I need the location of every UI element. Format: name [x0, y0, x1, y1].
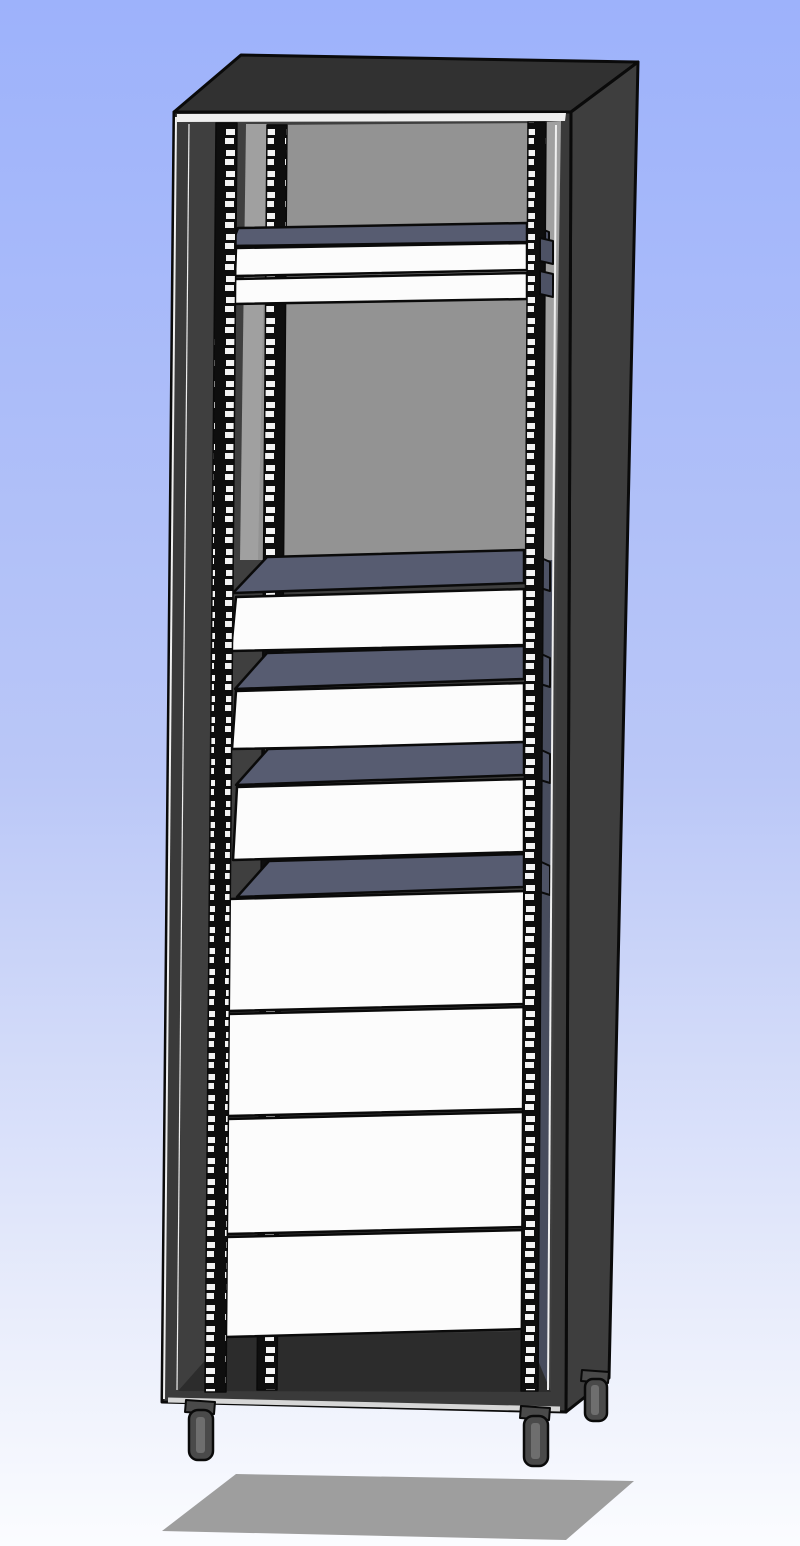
blank-panel-1 [228, 891, 526, 1011]
back-panel [255, 123, 546, 560]
top-edge-highlight [177, 113, 566, 122]
blank-panel-2 [227, 1007, 526, 1116]
rack-unit-panel-2 [234, 273, 527, 304]
mounting-tab-2 [540, 271, 553, 297]
drawer-3 [233, 779, 524, 860]
caster-rear-right-hub [591, 1385, 599, 1415]
caster-front-right-hub [531, 1423, 540, 1459]
rack-render [0, 0, 800, 1546]
rack-unit-panel-1 [235, 243, 527, 276]
cabinet-top-face [174, 55, 638, 112]
rack-cabinet [162, 55, 638, 1540]
caster-front-left-hub [196, 1417, 205, 1453]
cabinet-floor [178, 1331, 551, 1392]
floor-shadow [162, 1474, 634, 1540]
cad-render-viewport [0, 0, 800, 1546]
mounting-tab-1 [540, 238, 553, 264]
drawer-1 [231, 589, 524, 651]
blank-panel-4 [225, 1230, 526, 1337]
drawer-2 [232, 683, 524, 749]
blank-panel-3 [226, 1112, 526, 1234]
